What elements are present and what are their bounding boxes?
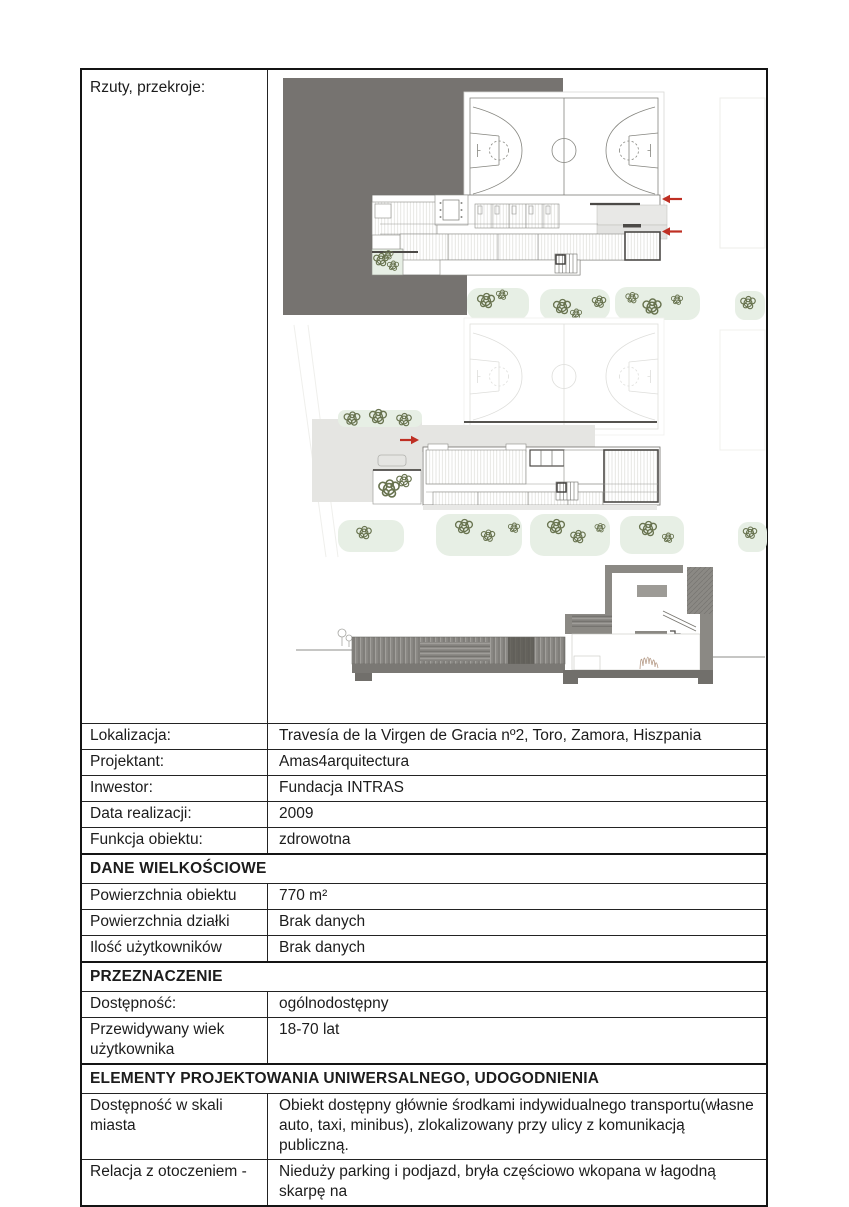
timber-volume bbox=[352, 637, 565, 681]
table-row: Funkcja obiektu:zdrowotna bbox=[82, 827, 766, 853]
building-section bbox=[296, 565, 765, 684]
two-storey-volume bbox=[563, 565, 713, 684]
building-plan-upper bbox=[372, 195, 667, 275]
info-rows: Lokalizacja:Travesía de la Virgen de Gra… bbox=[82, 723, 766, 1205]
table-row: Dostępność w skali miastaObiekt dostępny… bbox=[82, 1093, 766, 1159]
row-label: Powierzchnia obiektu bbox=[82, 884, 267, 909]
basketball-court-faint bbox=[470, 324, 658, 429]
drawing-row-label: Rzuty, przekroje: bbox=[82, 70, 267, 723]
garden-upper bbox=[467, 287, 765, 320]
row-label: Przewidywany wiek użytkownika bbox=[82, 1018, 267, 1063]
side-yard bbox=[373, 470, 421, 504]
stair-plan bbox=[555, 254, 577, 273]
row-value: Brak danych bbox=[267, 936, 766, 961]
table-row: Projektant:Amas4arquitectura bbox=[82, 749, 766, 775]
table-row: Ilość użytkownikówBrak danych bbox=[82, 935, 766, 961]
row-value: Fundacja INTRAS bbox=[267, 776, 766, 801]
row-label: Dostępność: bbox=[82, 992, 267, 1017]
project-info-table: Rzuty, przekroje: bbox=[80, 68, 768, 1207]
row-value: 18-70 lat bbox=[267, 1018, 766, 1063]
section-trees bbox=[338, 629, 352, 647]
row-label: Inwestor: bbox=[82, 776, 267, 801]
upper-floor-plan bbox=[283, 78, 765, 320]
ground-floor-plan bbox=[294, 318, 767, 557]
row-label: Funkcja obiektu: bbox=[82, 828, 267, 853]
row-value: Obiekt dostępny głównie środkami indywid… bbox=[267, 1094, 766, 1159]
document-page: { "table": { "drawing_row": { "label": "… bbox=[0, 0, 849, 1200]
table-row-drawings: Rzuty, przekroje: bbox=[82, 70, 766, 723]
section-header-row: ELEMENTY PROJEKTOWANIA UNIWERSALNEGO, UD… bbox=[82, 1063, 766, 1093]
architectural-drawings bbox=[268, 70, 767, 723]
table-row: Dostępność:ogólnodostępny bbox=[82, 991, 766, 1017]
table-row: Powierzchnia obiektu770 m² bbox=[82, 883, 766, 909]
row-value: ogólnodostępny bbox=[267, 992, 766, 1017]
row-label: Projektant: bbox=[82, 750, 267, 775]
section-header-label: ELEMENTY PROJEKTOWANIA UNIWERSALNEGO, UD… bbox=[82, 1065, 766, 1093]
garden-lower bbox=[338, 514, 767, 556]
row-value: Nieduży parking i podjazd, bryła częścio… bbox=[267, 1160, 766, 1205]
section-header-label: DANE WIELKOŚCIOWE bbox=[82, 855, 766, 883]
table-row: Inwestor:Fundacja INTRAS bbox=[82, 775, 766, 801]
row-value: Amas4arquitectura bbox=[267, 750, 766, 775]
table-row: Lokalizacja:Travesía de la Virgen de Gra… bbox=[82, 723, 766, 749]
row-label: Dostępność w skali miasta bbox=[82, 1094, 267, 1159]
table-row: Przewidywany wiek użytkownika18-70 lat bbox=[82, 1017, 766, 1063]
section-header-row: PRZEZNACZENIE bbox=[82, 961, 766, 991]
row-value: Travesía de la Virgen de Gracia nº2, Tor… bbox=[267, 724, 766, 749]
basketball-court bbox=[470, 98, 658, 203]
row-label: Relacja z otoczeniem - bbox=[82, 1160, 267, 1205]
row-value: Brak danych bbox=[267, 910, 766, 935]
row-value: zdrowotna bbox=[267, 828, 766, 853]
section-header-label: PRZEZNACZENIE bbox=[82, 963, 766, 991]
table-row: Powierzchnia działkiBrak danych bbox=[82, 909, 766, 935]
drawing-cell bbox=[267, 70, 767, 723]
row-value: 770 m² bbox=[267, 884, 766, 909]
row-label: Ilość użytkowników bbox=[82, 936, 267, 961]
row-value: 2009 bbox=[267, 802, 766, 827]
row-label: Powierzchnia działki bbox=[82, 910, 267, 935]
row-label: Lokalizacja: bbox=[82, 724, 267, 749]
stair-plan bbox=[556, 482, 578, 500]
table-row: Relacja z otoczeniem -Nieduży parking i … bbox=[82, 1159, 766, 1205]
table-row: Data realizacji:2009 bbox=[82, 801, 766, 827]
section-header-row: DANE WIELKOŚCIOWE bbox=[82, 853, 766, 883]
row-label: Data realizacji: bbox=[82, 802, 267, 827]
building-plan-lower bbox=[423, 444, 660, 510]
